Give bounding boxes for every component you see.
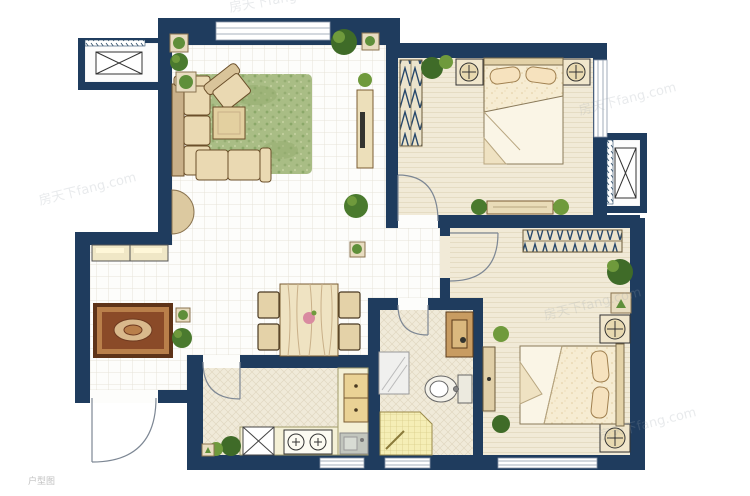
drawer-unit [344, 374, 368, 422]
toilet [425, 375, 472, 403]
wall [368, 310, 380, 455]
cabinet-light [134, 248, 162, 253]
entry-door-opening [90, 390, 158, 403]
nightstand-right [563, 59, 590, 85]
kitchen-sink [340, 433, 368, 454]
ac-platform-west-window-band [85, 40, 145, 46]
pillow [590, 386, 609, 419]
bathroom-window [385, 458, 430, 468]
wardrobe [523, 230, 622, 252]
coffee-table [213, 107, 245, 139]
ac-platform-east-window-band [607, 140, 613, 204]
wall [438, 215, 640, 228]
entry-door [92, 398, 156, 462]
cabinet-light [96, 248, 124, 253]
shoe-cabinet [92, 245, 168, 261]
kitchen-window [320, 458, 364, 468]
pillow [590, 350, 609, 383]
plant-icon [344, 194, 368, 218]
low-dresser [487, 201, 553, 214]
dresser-west [483, 347, 495, 411]
living-room-window [216, 22, 330, 40]
wall [187, 368, 203, 470]
floorplan-image: 房天下fang.com 房天下fang.com 房天下fang.com 房天下f… [0, 0, 750, 496]
watermark-caption: 户型图 [28, 475, 55, 487]
nightstand-north [600, 315, 630, 343]
floorplan-svg: 房天下fang.com 房天下fang.com 房天下fang.com 房天下f… [0, 0, 750, 496]
bedroom2-window [498, 458, 597, 468]
wardrobe [400, 60, 422, 146]
wall [607, 206, 647, 213]
plant-icon [493, 326, 509, 342]
plant-icon [179, 75, 193, 89]
wall [440, 228, 450, 236]
stove [284, 430, 332, 454]
double-bed [520, 344, 624, 426]
side-table-west [176, 72, 196, 92]
washbasin-cabinet [446, 312, 473, 357]
wall [473, 310, 483, 455]
appliance-washer [243, 427, 274, 455]
wall [386, 43, 607, 58]
bathroom-door-opening [398, 298, 428, 310]
shrub-plant-icon [170, 53, 188, 71]
ac-unit-east [615, 148, 636, 198]
tv-icon [360, 112, 365, 148]
tv-cabinet [357, 90, 373, 168]
plant-icon [553, 199, 569, 215]
wall [75, 232, 90, 403]
plant-icon [492, 415, 510, 433]
potted-plant [350, 242, 365, 257]
side-table-north [170, 34, 188, 52]
wall [78, 82, 165, 90]
plant-icon [471, 199, 487, 215]
bedroom1-door-opening [398, 215, 438, 228]
kitchen-door-opening [203, 355, 240, 368]
plant-icon [358, 73, 372, 87]
wall [640, 133, 647, 213]
plant-icon [173, 37, 185, 49]
watermark-text: 房天下fang.com [228, 0, 329, 16]
plant-highlight [347, 196, 357, 206]
bedroom2-door-opening [440, 236, 450, 278]
headboard [484, 58, 563, 65]
double-bed [484, 58, 563, 164]
vanity-mirror [379, 352, 409, 394]
headboard [616, 344, 624, 426]
ac-unit-west [96, 52, 142, 74]
flower-leaf [312, 311, 317, 316]
watermark-text: 房天下fang.com [37, 169, 138, 209]
wall [386, 18, 398, 228]
nightstand-left [456, 59, 483, 85]
entry-ornate-rug [93, 303, 173, 358]
corner-shower [380, 412, 432, 455]
shrub-highlight [172, 55, 180, 63]
